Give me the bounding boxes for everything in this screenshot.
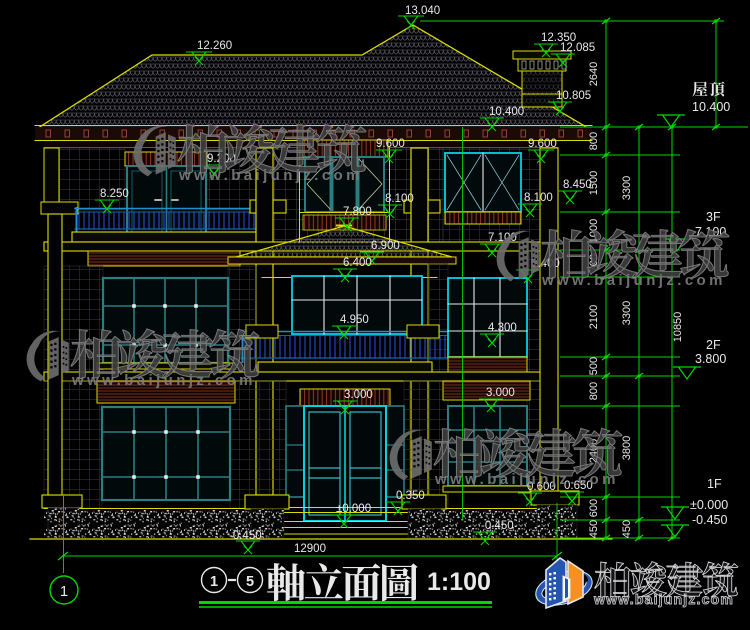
- svg-text:6.900: 6.900: [371, 240, 400, 252]
- svg-text:12.260: 12.260: [197, 40, 232, 52]
- svg-text:10850: 10850: [672, 312, 684, 343]
- svg-text:500: 500: [588, 357, 600, 375]
- svg-text:www.baijunjz.com: www.baijunjz.com: [541, 272, 726, 289]
- svg-text:12.085: 12.085: [560, 42, 595, 54]
- svg-text:2100: 2100: [588, 305, 600, 329]
- svg-text:-0.450: -0.450: [481, 520, 514, 532]
- svg-text:13.040: 13.040: [405, 5, 440, 17]
- svg-text:www.baijunjz.com: www.baijunjz.com: [71, 372, 256, 389]
- svg-text:1F: 1F: [707, 477, 722, 491]
- svg-text:www.baijunjz.com: www.baijunjz.com: [178, 167, 363, 184]
- svg-text:1: 1: [210, 574, 218, 590]
- svg-text:12900: 12900: [294, 543, 326, 555]
- svg-text:www.baijunjz.com: www.baijunjz.com: [434, 471, 619, 488]
- svg-text:3800: 3800: [621, 436, 633, 460]
- svg-text:600: 600: [588, 499, 600, 517]
- svg-text:3300: 3300: [621, 176, 633, 200]
- svg-text:-0.450: -0.450: [692, 513, 727, 527]
- svg-text:±0.000: ±0.000: [690, 498, 728, 512]
- svg-text:1:100: 1:100: [427, 568, 491, 596]
- svg-text:-0.450: -0.450: [229, 530, 262, 542]
- svg-text:3.000: 3.000: [486, 387, 515, 399]
- svg-text:www.baijunjz.com: www.baijunjz.com: [593, 591, 734, 607]
- svg-text:2F: 2F: [706, 338, 721, 352]
- svg-text:1: 1: [60, 583, 68, 600]
- svg-text:2640: 2640: [588, 62, 600, 86]
- svg-text:8.100: 8.100: [385, 193, 414, 205]
- svg-text:10.400: 10.400: [692, 100, 730, 114]
- svg-text:3300: 3300: [621, 301, 633, 325]
- svg-text:800: 800: [588, 382, 600, 400]
- svg-text:7.800: 7.800: [343, 206, 372, 218]
- svg-text:9.600: 9.600: [528, 138, 557, 150]
- svg-text:4.300: 4.300: [488, 322, 517, 334]
- svg-text:9.600: 9.600: [376, 138, 405, 150]
- svg-text:450: 450: [588, 520, 600, 538]
- svg-text:±0.000: ±0.000: [336, 503, 371, 515]
- svg-text:0.350: 0.350: [396, 490, 425, 502]
- svg-text:3F: 3F: [706, 210, 721, 224]
- svg-text:6.400: 6.400: [343, 257, 372, 269]
- svg-text:10.400: 10.400: [489, 106, 524, 118]
- svg-text:8.100: 8.100: [524, 192, 553, 204]
- svg-text:10.805: 10.805: [556, 90, 591, 102]
- svg-text:450: 450: [621, 520, 633, 538]
- svg-text:4.950: 4.950: [340, 314, 369, 326]
- svg-text:5: 5: [246, 574, 254, 590]
- svg-text:3.800: 3.800: [695, 352, 726, 366]
- svg-text:3.000: 3.000: [344, 389, 373, 401]
- svg-text:1500: 1500: [588, 171, 600, 195]
- svg-text:800: 800: [588, 132, 600, 150]
- svg-text:8.250: 8.250: [100, 188, 129, 200]
